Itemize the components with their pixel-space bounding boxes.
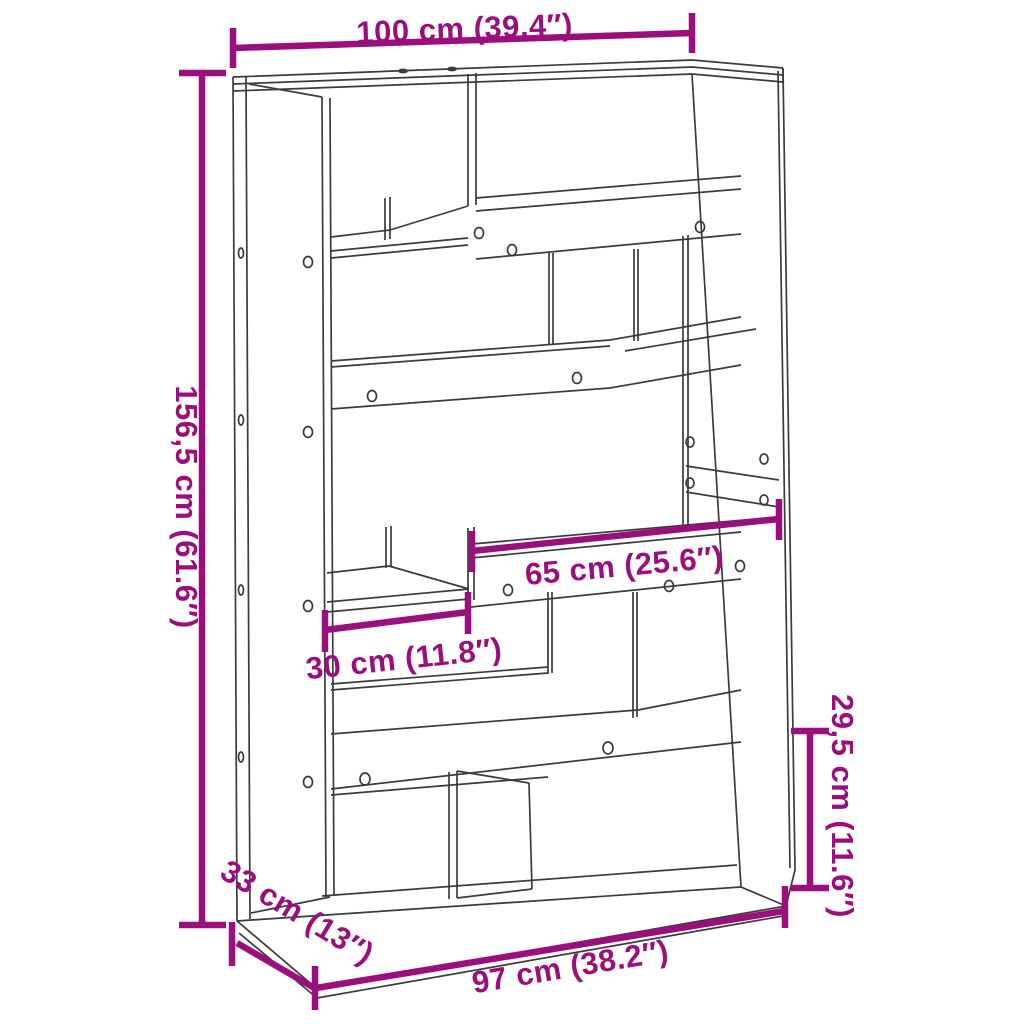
dim-line-shelf-small: [325, 612, 468, 630]
dim-line-depth: [237, 943, 316, 989]
dimension-height: 156,5 cm (61.6″): [169, 73, 226, 925]
furniture-line-drawing: 100 cm (39.4″) 156,5 cm (61.6″) 65 cm (2…: [0, 0, 1024, 1024]
dim-label-shelf-height: 29,5 cm (11.6″): [825, 694, 860, 918]
dimension-shelf-width: 65 cm (25.6″): [472, 499, 779, 592]
dim-line-shelf-width: [472, 519, 779, 551]
dim-label-width-top: 100 cm (39.4″): [356, 7, 574, 50]
dim-label-height: 156,5 cm (61.6″): [169, 385, 204, 628]
bookcase-shelves: [327, 73, 779, 899]
dimension-width-bottom: 97 cm (38.2″): [315, 886, 785, 1010]
dimension-width-top: 100 cm (39.4″): [233, 7, 692, 68]
dimension-shelf-height: 29,5 cm (11.6″): [791, 694, 860, 918]
diagram-canvas: 100 cm (39.4″) 156,5 cm (61.6″) 65 cm (2…: [0, 0, 1024, 1024]
dim-label-depth: 33 cm (13″): [215, 853, 380, 972]
